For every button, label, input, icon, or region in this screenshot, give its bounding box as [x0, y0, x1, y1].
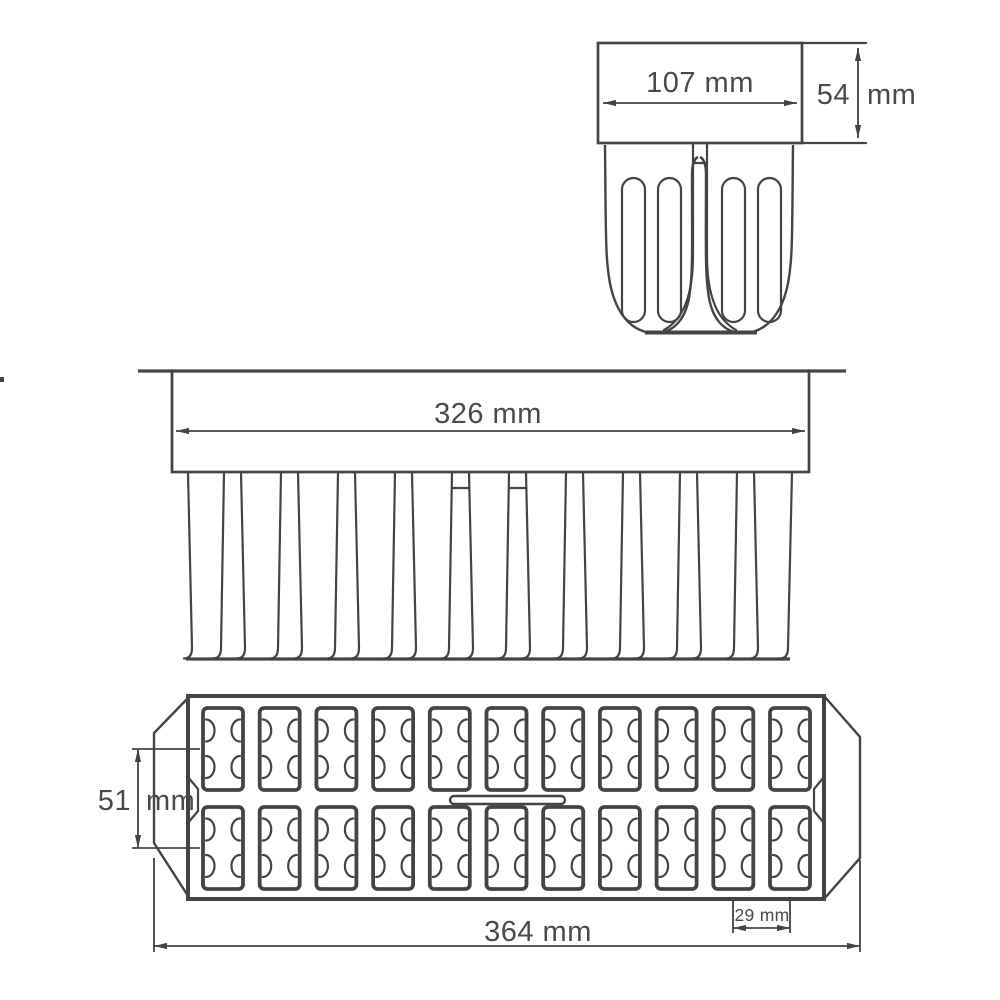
cavity-rib-arc [232, 855, 241, 877]
cavity-rib-arc [345, 819, 354, 841]
cavity-rib-arc [402, 720, 411, 742]
pocket-groove-slot [722, 178, 745, 322]
cavity-rib-arc [206, 756, 215, 778]
cavity-grid [203, 708, 810, 889]
cavity-rib-arc [660, 720, 669, 742]
mold-finger-line [351, 473, 359, 659]
cavity-rib-arc [799, 855, 808, 877]
mold-finger-line [408, 473, 416, 659]
cavity-rib-arc [288, 720, 297, 742]
dimension-label: 326 mm [434, 398, 542, 430]
cavity-rib-arc [742, 819, 751, 841]
pocket-groove-slot [758, 178, 781, 322]
cavity-rib-arc [433, 855, 442, 877]
cavity-rib-arc [433, 720, 442, 742]
cavity-rib-arc [773, 855, 782, 877]
cavity-rib-arc [742, 855, 751, 877]
cavity-rib-arc [319, 720, 328, 742]
cavity-rib-arc [546, 855, 555, 877]
cavity-rib-arc [773, 756, 782, 778]
cavity-rib-arc [603, 720, 612, 742]
cavity-rib-arc [490, 855, 499, 877]
technical-drawing-page: 107 mm 54 mm 326 mm [0, 0, 1000, 1000]
cavity-rib-arc [206, 819, 215, 841]
center-handle-slot [450, 796, 565, 804]
cavity-rib-arc [263, 855, 272, 877]
cavity-rib-arc [345, 855, 354, 877]
mold-finger-line [184, 473, 192, 659]
cavity-rib-arc [660, 855, 669, 877]
cavity-rib-arc [458, 819, 467, 841]
cavity-rib-arc [773, 819, 782, 841]
cavity-rib-arc [458, 756, 467, 778]
mold-finger-line [750, 473, 758, 659]
cavity-rib-arc [490, 756, 499, 778]
cavity-rib-arc [546, 720, 555, 742]
mold-finger-line [555, 473, 566, 659]
cavity-rib-arc [799, 720, 808, 742]
cavity-rib-arc [515, 855, 524, 877]
cavity-rib-arc [263, 819, 272, 841]
cavity-rib-arc [603, 819, 612, 841]
cavity-rib-arc [628, 855, 637, 877]
front-width-dimension: 326 mm [176, 398, 805, 431]
mold-finger-line [237, 473, 245, 659]
row-pitch-dimension: 51 mm [98, 749, 200, 848]
cavity-rib-arc [490, 720, 499, 742]
mold-finger-line [327, 473, 338, 659]
mold-finger-line [384, 473, 395, 659]
cavity-rib-arc [628, 756, 637, 778]
side-view-pockets [605, 143, 793, 333]
cavity-rib-arc [660, 756, 669, 778]
cavity-rib-arc [376, 819, 385, 841]
mold-finger-line [612, 473, 623, 659]
cavity-rib-arc [515, 720, 524, 742]
cavity-pitch-dimension: 29 mm [733, 901, 790, 933]
mold-finger-line [465, 473, 473, 659]
cavity-rib-arc [319, 756, 328, 778]
mold-finger-comb [184, 473, 792, 659]
dimension-label: 29 mm [735, 905, 790, 925]
cavity-rib-arc [685, 819, 694, 841]
cavity-rib-arc [603, 756, 612, 778]
height-dimension: 54 mm [817, 48, 917, 138]
cavity-rib-arc [660, 819, 669, 841]
mold-finger-line [636, 473, 644, 659]
mold-finger-line [270, 473, 281, 659]
mold-finger-line [213, 473, 224, 659]
cavity-rib-arc [376, 855, 385, 877]
cavity-rib-arc [742, 720, 751, 742]
cavity-rib-arc [628, 720, 637, 742]
pocket-groove-slot [622, 178, 645, 322]
cavity-rib-arc [490, 819, 499, 841]
front-view: 326 mm [138, 371, 846, 659]
mold-finger-line [522, 473, 530, 659]
cavity-rib-arc [263, 720, 272, 742]
cavity-rib-arc [685, 720, 694, 742]
cavity-rib-arc [716, 819, 725, 841]
cavity-rib-arc [206, 720, 215, 742]
mold-finger-line [669, 473, 680, 659]
top-view: 51 mm 364 mm 29 mm [98, 696, 860, 952]
cavity-rib-arc [685, 855, 694, 877]
side-view: 107 mm 54 mm [598, 43, 916, 333]
cavity-rib-arc [376, 756, 385, 778]
cavity-rib-arc [288, 819, 297, 841]
cavity-rib-arc [799, 756, 808, 778]
cavity-rib-arc [716, 720, 725, 742]
pocket-groove-slot [658, 178, 681, 322]
cavity-rib-arc [628, 819, 637, 841]
cavity-rib-arc [206, 855, 215, 877]
cavity-rib-arc [232, 720, 241, 742]
mold-finger-line [294, 473, 302, 659]
cavity-rib-arc [572, 855, 581, 877]
cavity-rib-arc [742, 756, 751, 778]
dimension-label-unit: mm [867, 79, 916, 111]
cavity-rib-arc [288, 855, 297, 877]
cavity-rib-arc [232, 819, 241, 841]
mold-finger-line [693, 473, 701, 659]
cavity-rib-arc [458, 720, 467, 742]
cavity-rib-arc [376, 720, 385, 742]
width-dimension: 107 mm [603, 67, 797, 103]
cavity-rib-arc [716, 855, 725, 877]
cavity-rib-arc [572, 819, 581, 841]
cavity-rib-arc [572, 756, 581, 778]
cavity-rib-arc [685, 756, 694, 778]
cavity-rib-arc [288, 756, 297, 778]
mold-finger-line [498, 473, 509, 659]
dimension-label: 107 mm [646, 67, 754, 99]
cavity-rib-arc [546, 756, 555, 778]
cavity-rib-arc [263, 756, 272, 778]
mold-finger-line [579, 473, 587, 659]
dimension-label: 364 mm [484, 916, 592, 948]
cavity-rib-arc [319, 819, 328, 841]
cavity-rib-arc [345, 756, 354, 778]
cavity-rib-arc [515, 756, 524, 778]
cavity-rib-arc [572, 720, 581, 742]
cavity-rib-arc [773, 720, 782, 742]
cavity-rib-arc [319, 855, 328, 877]
cavity-rib-arc [458, 855, 467, 877]
cavity-rib-arc [345, 720, 354, 742]
edge-mark [0, 377, 4, 382]
tray-face-outline [188, 696, 824, 899]
cavity-rib-arc [603, 855, 612, 877]
cavity-rib-arc [799, 819, 808, 841]
dimension-label-value: 51 [98, 785, 131, 817]
cavity-rib-arc [433, 756, 442, 778]
drawing-canvas: 107 mm 54 mm 326 mm [0, 0, 1000, 1000]
mold-finger-line [726, 473, 737, 659]
mold-finger-line [780, 473, 792, 659]
cavity-rib-arc [402, 756, 411, 778]
cavity-rib-arc [402, 819, 411, 841]
cavity-rib-arc [232, 756, 241, 778]
mold-finger-line [441, 473, 452, 659]
cavity-rib-arc [515, 819, 524, 841]
dimension-label-unit: mm [146, 785, 195, 817]
cavity-rib-arc [433, 819, 442, 841]
cavity-rib-arc [546, 819, 555, 841]
cavity-rib-arc [716, 756, 725, 778]
cavity-rib-arc [402, 855, 411, 877]
dimension-label-value: 54 [817, 79, 850, 111]
